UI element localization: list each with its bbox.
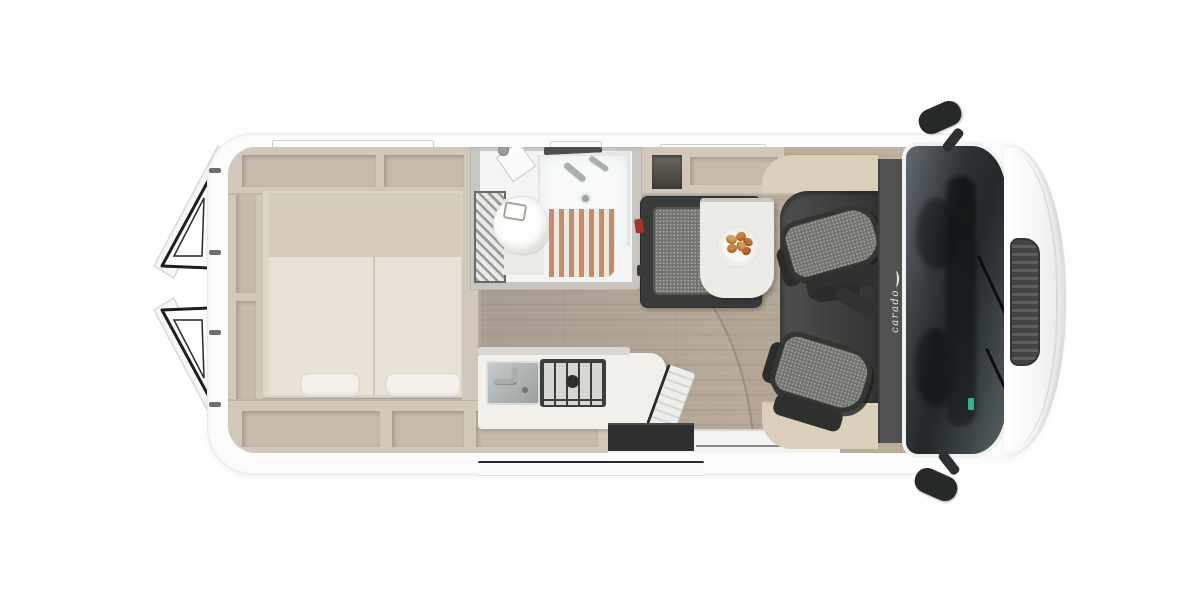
bed-head-section	[269, 193, 461, 259]
kitchen-faucet-spout	[512, 367, 517, 383]
door-hinge	[209, 168, 221, 173]
food-plate	[717, 226, 759, 268]
door-hinge	[209, 402, 221, 407]
dining-table	[700, 198, 774, 298]
wiper-blade	[977, 255, 1006, 320]
glass-reflection	[906, 146, 964, 454]
door-hinge	[209, 250, 221, 255]
exterior-entry-step	[478, 461, 704, 476]
counter-backsplash	[478, 347, 630, 355]
side-mirror-right	[914, 442, 972, 500]
basin-drain	[582, 195, 589, 202]
entry-step-well	[608, 423, 694, 451]
pillow-right	[385, 373, 461, 397]
seatbelt-anchor	[637, 265, 645, 276]
seatbelt-buckle	[634, 219, 644, 234]
kitchen-sink	[486, 361, 540, 405]
mattress-split	[373, 257, 375, 395]
sink-drain	[522, 387, 528, 393]
brand-logo-text: carado	[890, 289, 901, 333]
shower-grate	[549, 209, 615, 277]
burner	[566, 375, 579, 388]
kitchen-counter	[478, 353, 666, 429]
interior-floor: carado	[228, 147, 908, 453]
toilet-lid-latch	[503, 201, 528, 222]
windshield-sticker	[968, 398, 974, 410]
front-grille	[1010, 238, 1040, 366]
wardrobe-opening	[652, 155, 682, 189]
brand-logo: carado	[884, 259, 906, 345]
windshield-header-band: carado	[878, 159, 908, 443]
wiper-blade	[985, 348, 1006, 407]
brand-logo-swoosh	[892, 271, 899, 287]
bathroom	[470, 147, 642, 290]
gas-hob	[540, 359, 606, 407]
door-hinge	[209, 330, 221, 335]
pillow-left	[300, 373, 360, 397]
hood	[1004, 145, 1066, 455]
campervan-floorplan: carado	[0, 0, 1200, 600]
top-storage-shelf	[228, 147, 470, 195]
windshield	[906, 146, 1006, 454]
transverse-bed	[262, 190, 468, 398]
side-mirror-left	[918, 103, 976, 161]
